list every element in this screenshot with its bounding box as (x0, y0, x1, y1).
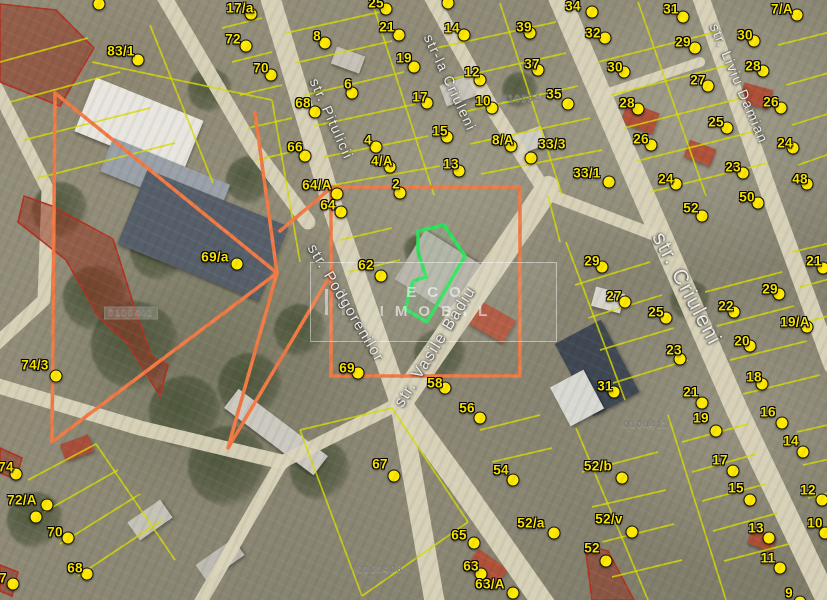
parcel-number-label[interactable]: 31 (597, 379, 613, 394)
parcel-boundary-line (92, 62, 272, 100)
parcel-number-label[interactable]: 58 (427, 376, 443, 391)
building-roof (118, 169, 289, 300)
parcel-number-label[interactable]: 28 (745, 59, 761, 74)
parcel-number-label[interactable]: 17/a (226, 1, 253, 16)
parcel-number-label[interactable]: 19/A (780, 315, 810, 330)
parcel-boundary-line (28, 444, 96, 480)
parcel-marker-dot[interactable] (30, 511, 43, 524)
parcel-marker-dot[interactable] (525, 152, 538, 165)
parcel-number-label[interactable]: 25 (368, 0, 384, 11)
tree-canopy (32, 182, 88, 238)
parcel-number-label[interactable]: 62 (358, 258, 374, 273)
tree-canopy (218, 353, 282, 417)
parcel-boundary-line (492, 448, 552, 462)
parcel-number-label[interactable]: 50 (739, 190, 755, 205)
parcel-boundary-line (295, 41, 392, 63)
tree-canopy (188, 426, 268, 506)
road (0, 75, 48, 345)
parcel-boundary-line (470, 118, 590, 144)
parcel-boundary-line (10, 72, 120, 102)
parcel-boundary-line (150, 25, 213, 183)
building-roof (550, 370, 604, 427)
parcel-boundary-line (592, 490, 666, 507)
parcel-marker-dot[interactable] (776, 417, 789, 430)
parcel-number-label[interactable]: 48 (792, 172, 808, 187)
parcel-number-label[interactable]: 37 (524, 57, 540, 72)
parcel-boundary-line (300, 408, 392, 430)
parcel-number-label[interactable]: 12 (800, 483, 816, 498)
parcel-number-label[interactable]: 54 (493, 463, 509, 478)
parcel-marker-dot[interactable] (388, 470, 401, 483)
parcel-boundary-line (778, 32, 827, 45)
street-name-label: str-la Criuleni (421, 32, 480, 134)
parcel-number-label[interactable]: 25 (648, 305, 664, 320)
parcel-boundary-line (797, 424, 827, 432)
parcel-number-label[interactable]: 23 (666, 343, 682, 358)
parcel-boundary-line (480, 415, 540, 430)
parcel-marker-dot[interactable] (240, 40, 253, 53)
parcel-boundary-line (272, 100, 300, 262)
parcel-marker-dot[interactable] (548, 527, 561, 540)
tree-canopy (63, 266, 127, 330)
cadastral-zone-id: 0100401 (104, 307, 158, 320)
parcel-number-label[interactable]: 30 (607, 60, 623, 75)
parcel-number-label[interactable]: 7 (0, 571, 7, 586)
building-roof (555, 320, 639, 417)
parcel-marker-dot[interactable] (616, 472, 629, 485)
parcel-number-label[interactable]: 63 (463, 559, 479, 574)
parcel-number-label[interactable]: 69/a (201, 250, 228, 265)
parcel-marker-dot[interactable] (93, 0, 106, 11)
parcel-number-label[interactable]: 67 (372, 457, 388, 472)
parcel-number-label[interactable]: 31 (663, 2, 679, 17)
parcel-number-label[interactable]: 35 (546, 87, 562, 102)
parcel-number-label[interactable]: 52 (584, 541, 600, 556)
parcel-number-label[interactable]: 8/A (492, 133, 514, 148)
building-roof (224, 389, 328, 476)
parcel-marker-dot[interactable] (794, 596, 807, 600)
parcel-number-label[interactable]: 52/a (517, 516, 544, 531)
parcel-marker-dot[interactable] (468, 537, 481, 550)
parcel-number-label[interactable]: 10 (475, 94, 491, 109)
parcel-marker-dot[interactable] (727, 465, 740, 478)
parcel-marker-dot[interactable] (375, 270, 388, 283)
parcel-boundary-line (800, 278, 827, 287)
parcel-marker-dot[interactable] (507, 587, 520, 600)
parcel-marker-dot[interactable] (816, 494, 827, 507)
tree-canopy (130, 220, 190, 280)
building-roof (127, 500, 172, 541)
parcel-marker-dot[interactable] (41, 499, 54, 512)
parcel-marker-dot[interactable] (474, 412, 487, 425)
parcel-number-label[interactable]: 11 (761, 551, 776, 566)
road (0, 385, 282, 462)
parcel-number-label[interactable]: 22 (718, 299, 734, 314)
parcel-number-label[interactable]: 72/A (7, 493, 37, 508)
parcel-number-label[interactable]: 2 (392, 177, 400, 192)
cadastral-zone-id: 010084 (501, 94, 540, 105)
building-roof (684, 140, 716, 166)
orange-annotation-line[interactable] (255, 113, 277, 273)
parcel-number-label[interactable]: 18 (746, 370, 762, 385)
parcel-number-label[interactable]: 27 (606, 289, 622, 304)
parcel-number-label[interactable]: 19 (396, 51, 412, 66)
parcel-boundary-line (668, 415, 726, 600)
parcel-boundary-line (286, 12, 380, 33)
parcel-number-label[interactable]: 29 (675, 35, 691, 50)
parcel-boundary-line (0, 38, 88, 62)
parcel-number-label[interactable]: 70 (253, 61, 269, 76)
tree-canopy (149, 376, 221, 448)
parcel-number-label[interactable]: 66 (287, 140, 303, 155)
parcel-number-label[interactable]: 64/A (302, 178, 332, 193)
parcel-boundary-line (792, 112, 827, 125)
parcel-number-label[interactable]: 17 (712, 453, 728, 468)
parcel-boundary-line (38, 143, 175, 178)
parcel-boundary-line (803, 458, 827, 465)
tree-canopy (188, 68, 232, 112)
orange-annotation-line[interactable] (52, 93, 277, 442)
parcel-number-label[interactable]: 15 (432, 124, 448, 139)
parcel-number-label[interactable]: 12 (464, 65, 480, 80)
parcel-marker-dot[interactable] (50, 370, 63, 383)
building-roof (195, 539, 244, 582)
parcel-number-label[interactable]: 24 (658, 172, 674, 187)
parcel-number-label[interactable]: 83/1 (107, 44, 134, 59)
red-highlighted-parcel[interactable] (0, 4, 94, 106)
parcel-marker-dot[interactable] (603, 176, 616, 189)
parcel-number-label[interactable]: 32 (585, 26, 601, 41)
parcel-number-label[interactable]: 28 (619, 96, 635, 111)
parcel-number-label[interactable]: 14 (444, 21, 460, 36)
parcel-number-label[interactable]: 23 (725, 160, 741, 175)
parcel-boundary-line (222, 18, 262, 28)
parcel-number-label[interactable]: 33/1 (573, 166, 600, 181)
parcel-boundary-line (724, 544, 789, 561)
building-roof (74, 77, 203, 174)
parcel-marker-dot[interactable] (442, 0, 455, 10)
parcel-number-label[interactable]: 21 (379, 20, 395, 35)
parcel-number-label[interactable]: 9 (785, 586, 793, 600)
parcel-number-label[interactable]: 39 (516, 20, 532, 35)
parcel-marker-dot[interactable] (763, 532, 776, 545)
parcel-boundary-line (340, 228, 392, 240)
parcel-number-label[interactable]: 52 (683, 201, 699, 216)
parcel-boundary-line (392, 408, 468, 522)
parcel-number-label[interactable]: 10 (807, 516, 823, 531)
parcel-number-label[interactable]: 21 (806, 254, 822, 269)
cadastral-zone-id: 0100408 (357, 565, 403, 576)
parcel-number-label[interactable]: 17 (412, 90, 428, 105)
parcel-number-label[interactable]: 7/A (771, 2, 793, 17)
parcel-number-label[interactable]: 8 (313, 29, 321, 44)
parcel-number-label[interactable]: 65 (451, 528, 467, 543)
parcel-number-label[interactable]: 26 (763, 95, 779, 110)
parcel-boundary-line (786, 72, 827, 85)
parcel-number-label[interactable]: 52/b (584, 459, 612, 474)
parcel-marker-dot[interactable] (62, 532, 75, 545)
parcel-number-label[interactable]: 27 (690, 73, 706, 88)
parcel-number-label[interactable]: 34 (565, 0, 581, 14)
parcel-boundary-line (240, 85, 282, 95)
parcel-number-label[interactable]: 64 (320, 198, 336, 213)
parcel-boundary-line (638, 2, 706, 196)
parcel-number-label[interactable]: 69 (339, 361, 355, 376)
parcel-boundary-line (612, 560, 682, 577)
parcel-number-label[interactable]: 30 (737, 28, 753, 43)
parcel-boundary-line (798, 152, 827, 165)
parcel-marker-dot[interactable] (7, 578, 20, 591)
parcel-marker-dot[interactable] (586, 6, 599, 19)
tree-canopy (290, 440, 350, 500)
parcel-number-label[interactable]: 68 (67, 561, 83, 576)
parcel-number-label[interactable]: 52/v (595, 512, 622, 527)
parcel-number-label[interactable]: 74 (0, 460, 14, 475)
tree-canopy (226, 156, 274, 204)
parcel-marker-dot[interactable] (562, 98, 575, 111)
parcel-boundary-line (44, 470, 118, 512)
parcel-number-label[interactable]: 63/A (475, 577, 505, 592)
parcel-number-label[interactable]: 4/A (371, 154, 393, 169)
parcel-boundary-line (96, 444, 175, 560)
parcel-boundary-line (24, 108, 150, 140)
parcel-number-label[interactable]: 13 (748, 521, 764, 536)
parcel-marker-dot[interactable] (600, 555, 613, 568)
parcel-number-label[interactable]: 25 (708, 115, 724, 130)
parcel-boundary-line (248, 118, 292, 128)
parcel-number-label[interactable]: 6 (344, 77, 352, 92)
road (545, 193, 660, 237)
parcel-marker-dot[interactable] (744, 494, 757, 507)
parcel-number-label[interactable]: 20 (734, 334, 750, 349)
cadastral-zone-id: 0100411 (623, 420, 668, 431)
parcel-number-label[interactable]: 19 (693, 411, 709, 426)
building-roof (331, 46, 365, 73)
parcel-number-label[interactable]: 21 (683, 385, 699, 400)
parcel-number-label[interactable]: 70 (47, 525, 63, 540)
parcel-number-label[interactable]: 29 (584, 254, 600, 269)
parcel-number-label[interactable]: 16 (760, 405, 776, 420)
watermark-line2: IMOBIL (369, 302, 499, 321)
building-roof (100, 138, 230, 219)
parcel-number-label[interactable]: 13 (443, 157, 459, 172)
parcel-number-label[interactable]: 24 (777, 136, 793, 151)
parcel-boundary-line (600, 328, 674, 350)
street-name-label: str. Criuleni (646, 228, 726, 349)
parcel-number-label[interactable]: 74/3 (21, 358, 48, 373)
parcel-number-label[interactable]: 26 (633, 132, 649, 147)
parcel-marker-dot[interactable] (231, 258, 244, 271)
parcel-boundary-line (300, 430, 362, 596)
parcel-boundary-line (713, 513, 778, 531)
parcel-marker-dot[interactable] (335, 206, 348, 219)
parcel-marker-dot[interactable] (710, 425, 723, 438)
parcel-marker-dot[interactable] (626, 526, 639, 539)
building-roof (60, 434, 94, 461)
cadastral-map-viewport[interactable]: ECO IMOBIL 17/a83/17270686664/A642582119… (0, 0, 827, 600)
parcel-number-label[interactable]: 68 (295, 96, 311, 111)
parcel-number-label[interactable]: 15 (728, 481, 744, 496)
parcel-number-label[interactable]: 14 (783, 434, 799, 449)
parcel-number-label[interactable]: 56 (459, 401, 475, 416)
parcel-boundary-line (548, 196, 560, 242)
parcel-number-label[interactable]: 4 (364, 133, 372, 148)
parcel-boundary-line (792, 243, 827, 252)
parcel-number-label[interactable]: 72 (225, 32, 241, 47)
parcel-number-label[interactable]: 29 (762, 282, 778, 297)
parcel-number-label[interactable]: 33/3 (538, 137, 565, 152)
